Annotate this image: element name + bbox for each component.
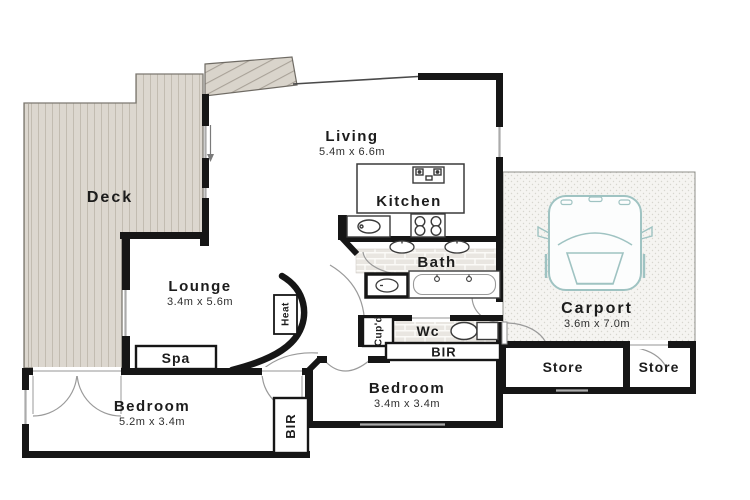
bedroom1-label: Bedroom [114, 398, 190, 415]
bir-hall-label: BIR [431, 345, 456, 360]
lounge-label: Lounge [168, 278, 231, 295]
store1-label: Store [543, 359, 584, 375]
car-icon [538, 196, 652, 290]
wc-label: Wc [417, 323, 440, 339]
bir-bedroom1-label: BIR [283, 413, 298, 438]
kitchen-label: Kitchen [376, 193, 442, 210]
living-dims: 5.4m x 6.6m [319, 146, 385, 158]
bedroom2-dims: 3.4m x 3.4m [374, 398, 440, 410]
floorplan-canvas: Deck Living 5.4m x 6.6m Kitchen Bath Lou… [0, 0, 750, 500]
lounge-dims: 3.4m x 5.6m [167, 296, 233, 308]
carport-label: Carport [561, 300, 633, 317]
bedroom1-dims: 5.2m x 3.4m [119, 416, 185, 428]
cupd-label: Cup'd [374, 316, 385, 346]
kitchen-sink-icon [347, 216, 390, 237]
deck-label: Deck [87, 189, 133, 206]
cooktop-icon [411, 214, 445, 237]
living-label: Living [325, 128, 378, 145]
bath-label: Bath [417, 254, 456, 271]
oven-icon [413, 167, 444, 183]
carport-door-leaf [502, 322, 507, 344]
store2-label: Store [639, 359, 680, 375]
spa-label: Spa [162, 350, 191, 366]
heat-label: Heat [281, 302, 292, 326]
vanity-icon [366, 274, 408, 297]
bedroom2-label: Bedroom [369, 380, 445, 397]
floorplan-drawing: Deck Living 5.4m x 6.6m Kitchen Bath Lou… [0, 0, 750, 500]
bathtub-icon [409, 271, 500, 298]
carport-dims: 3.6m x 7.0m [564, 318, 630, 330]
